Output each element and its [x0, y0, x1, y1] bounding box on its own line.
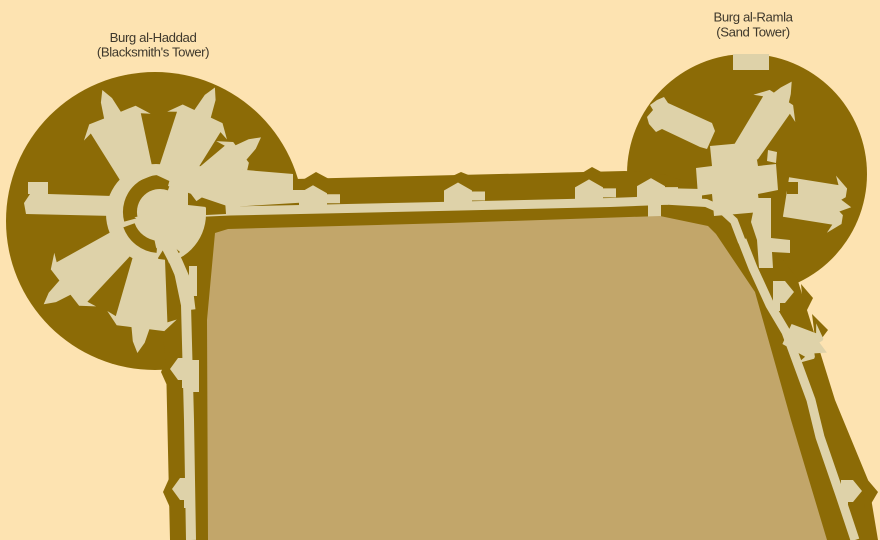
svg-text:(Blacksmith's Tower): (Blacksmith's Tower): [97, 45, 209, 60]
svg-text:Burg al-Haddad: Burg al-Haddad: [110, 30, 197, 45]
svg-text:Burg al-Ramla: Burg al-Ramla: [713, 10, 793, 25]
svg-text:(Sand Tower): (Sand Tower): [716, 25, 789, 40]
